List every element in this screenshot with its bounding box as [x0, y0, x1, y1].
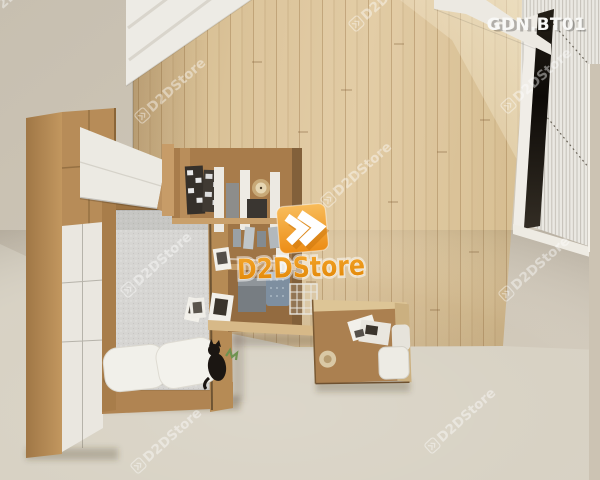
photo-card [213, 247, 232, 271]
right-wall-strip [589, 64, 600, 480]
photo-card [208, 293, 234, 324]
photo-collage-board [185, 166, 205, 215]
brand-logo-text: D2DStore [237, 249, 366, 286]
product-code: GDN.BT01 [487, 15, 586, 35]
clock-center [260, 187, 262, 189]
brand-logo-text-group: D2DStore D2DStore [237, 249, 366, 286]
desk [313, 296, 412, 385]
shelf-shadow [232, 334, 318, 346]
double-chevron-right-icon [276, 203, 329, 254]
product-render-screenshot: D2DStore D2DStore D2DStore D2DStore D2DS… [0, 0, 600, 480]
photo-card [189, 297, 206, 318]
product-code-group: GDN.BT01 GDN.BT01 [487, 15, 588, 37]
paper-photo [365, 325, 378, 336]
metal-box [226, 183, 239, 218]
shelf-post [162, 144, 174, 216]
chair-seat [378, 346, 409, 379]
wardrobe-wood-side [26, 112, 62, 458]
dark-box [247, 199, 267, 219]
room-render: D2DStore D2DStore D2DStore D2DStore D2DS… [0, 0, 600, 480]
